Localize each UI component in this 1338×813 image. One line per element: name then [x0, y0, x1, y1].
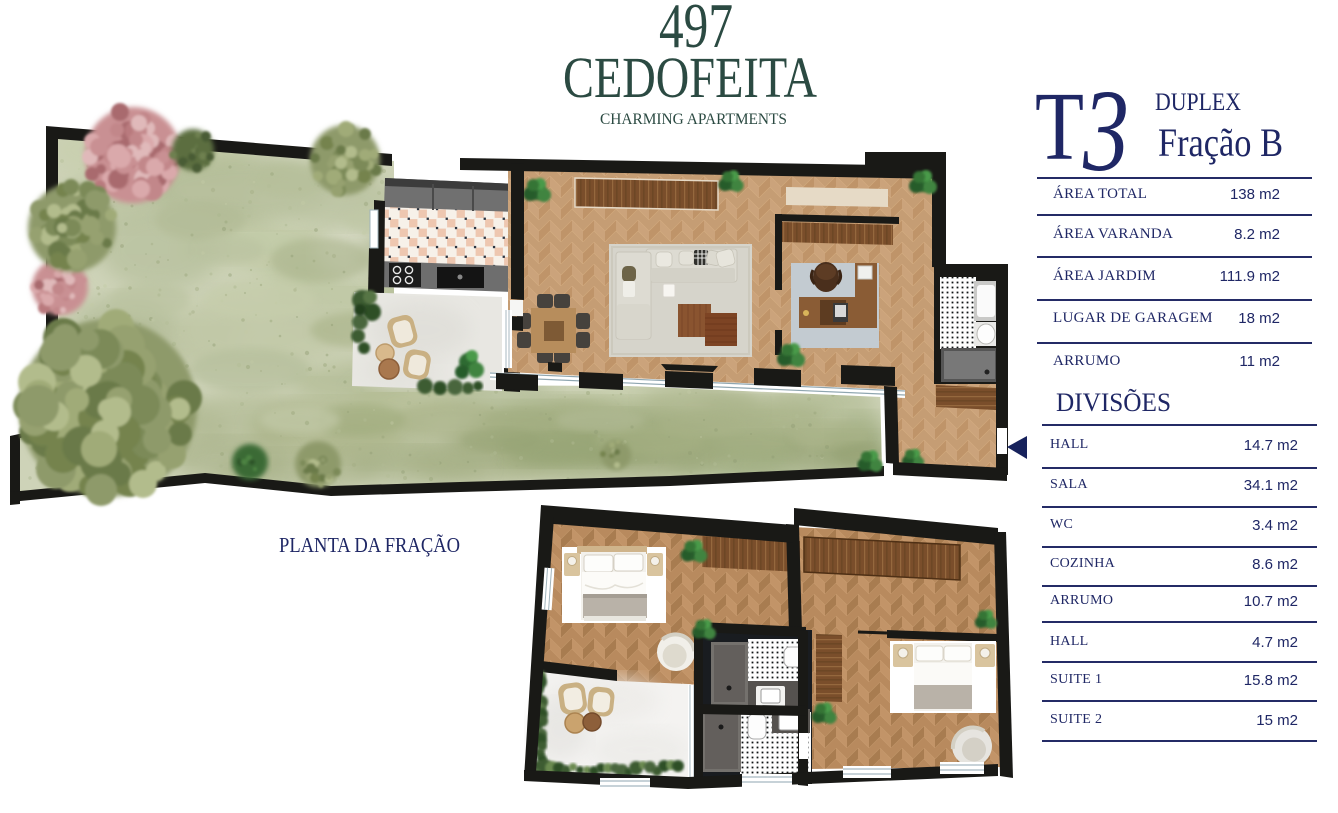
svg-text:T: T	[1035, 73, 1084, 181]
svg-text:Fração B: Fração B	[1158, 120, 1283, 165]
svg-text:CEDOFEITA: CEDOFEITA	[563, 45, 817, 110]
svg-text:DIVISÕES: DIVISÕES	[1056, 388, 1171, 417]
svg-text:CHARMING APARTMENTS: CHARMING APARTMENTS	[600, 111, 787, 128]
svg-text:DUPLEX: DUPLEX	[1155, 89, 1241, 116]
svg-text:PLANTA DA FRAÇÃO: PLANTA DA FRAÇÃO	[279, 533, 460, 557]
